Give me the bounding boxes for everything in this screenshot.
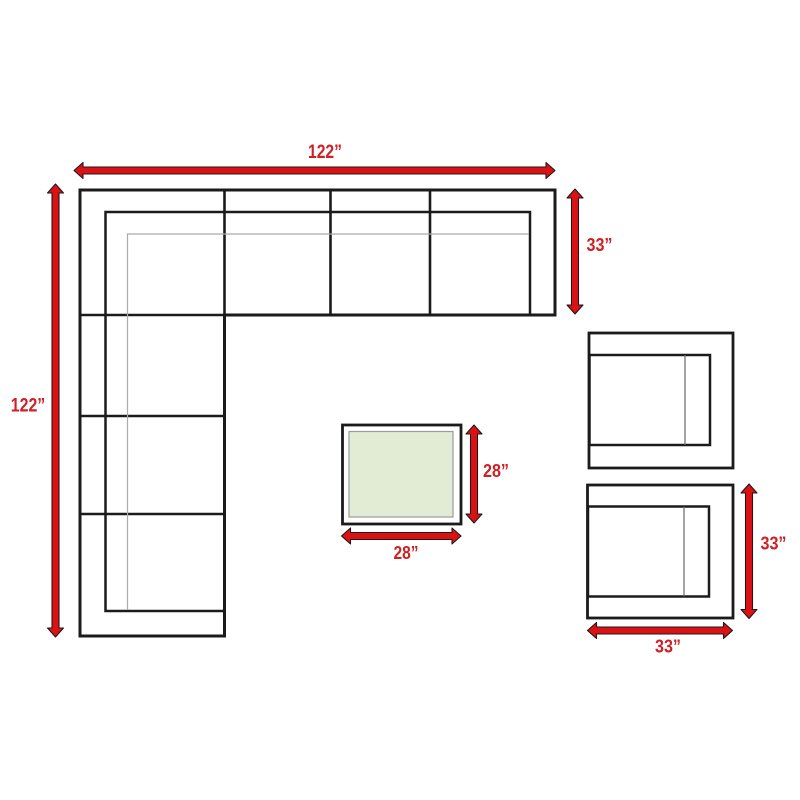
svg-text:122”: 122” (11, 395, 46, 417)
svg-text:33”: 33” (761, 533, 787, 554)
svg-text:122”: 122” (308, 141, 342, 163)
svg-text:33”: 33” (587, 235, 613, 255)
svg-text:28”: 28” (483, 461, 509, 481)
svg-text:28”: 28” (394, 543, 419, 563)
svg-text:33”: 33” (655, 637, 681, 657)
